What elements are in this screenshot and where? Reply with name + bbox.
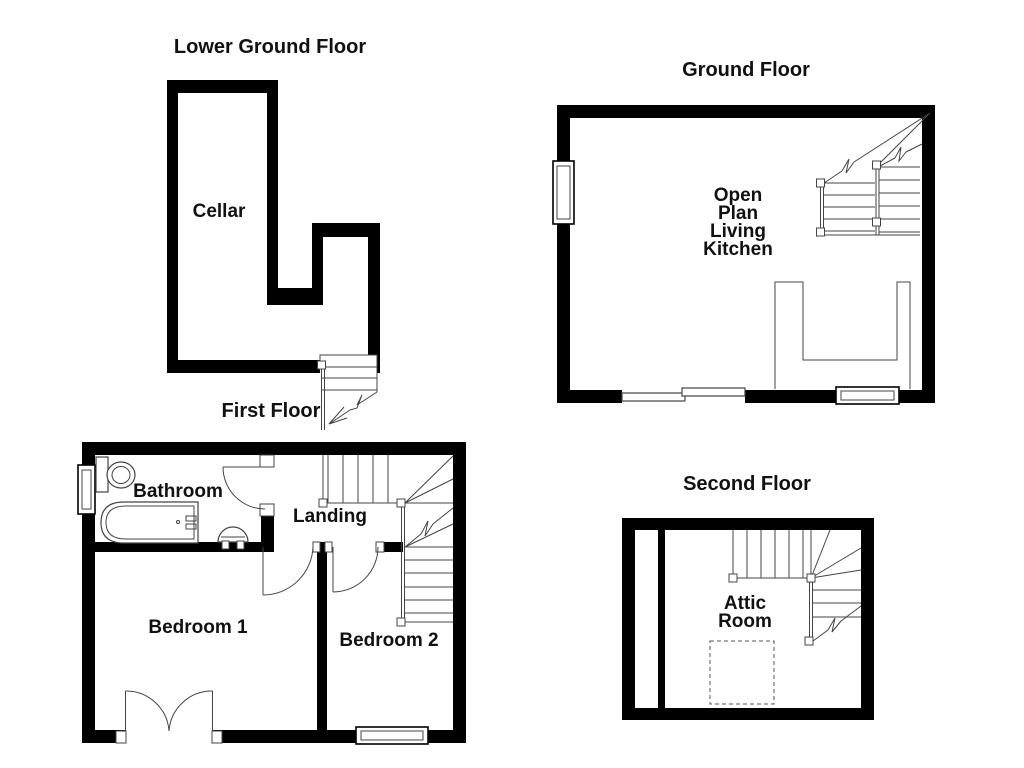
stair-upper-flight [323, 455, 453, 503]
lower-ground-floor-title: Lower Ground Floor [174, 36, 366, 58]
door-jamb [325, 542, 332, 552]
cellar-stairs [318, 355, 378, 430]
bathroom-window [78, 465, 95, 514]
stair-newel-post [397, 499, 405, 507]
ground-floor-plan: Ground Floor [553, 59, 935, 404]
stair-newel-post [805, 637, 813, 645]
kitchen-counter [775, 282, 910, 389]
lower-ground-floor-plan: Lower Ground Floor Cellar [167, 36, 380, 430]
open-plan-living-kitchen-label: Open Plan Living Kitchen [703, 185, 773, 260]
first-floor-plan: First Floor [78, 400, 466, 744]
ground-floor-bottom-window [836, 387, 899, 404]
stair-stringer [810, 578, 813, 642]
door-jamb [313, 542, 320, 552]
landing-label: Landing [293, 506, 367, 527]
toilet [96, 457, 135, 492]
floorplan-page: Lower Ground Floor Cellar Ground Floor [0, 0, 1024, 768]
second-floor-plan: Second Floor Attic Room [622, 473, 874, 720]
ground-floor-patio-door [622, 388, 745, 404]
floorplan-canvas: Lower Ground Floor Cellar Ground Floor [0, 0, 1024, 768]
stair-right-flight [876, 164, 920, 235]
first-floor-title: First Floor [222, 400, 321, 422]
bedroom1-label: Bedroom 1 [148, 617, 248, 638]
door-jamb [260, 455, 274, 467]
stair-winder-lines [405, 456, 453, 547]
ground-floor-stairs [817, 113, 931, 236]
second-floor-title: Second Floor [683, 473, 811, 495]
stair-lower-flight [813, 590, 862, 617]
ground-floor-title: Ground Floor [682, 59, 810, 81]
svg-text:Room: Room [718, 611, 772, 632]
stair-newel-post [318, 361, 326, 369]
stair-left-flight [821, 183, 921, 235]
door-jamb [260, 504, 274, 516]
stair-stringer [402, 503, 405, 622]
stair-well [320, 355, 377, 392]
stair-winder-lines [824, 113, 930, 183]
door-jamb [376, 542, 384, 552]
restricted-headroom-area [710, 641, 774, 704]
stair-break-arrow [329, 392, 377, 424]
stair-newel-post [817, 179, 825, 187]
stair-winder-lines [811, 530, 861, 578]
bedroom1-french-doors [116, 691, 222, 744]
cellar-label: Cellar [193, 201, 246, 222]
stair-break-line [813, 606, 861, 641]
stair-newel-post [873, 161, 881, 169]
ground-floor-left-window [553, 161, 574, 224]
bedroom2-window [356, 727, 428, 744]
bathroom-label: Bathroom [133, 481, 223, 502]
bedroom2-door [333, 547, 378, 592]
cellar-walls [167, 80, 380, 373]
bathtub [101, 502, 198, 543]
stair-lower-flight [405, 560, 453, 622]
stair-newel-post [729, 574, 737, 582]
stair-newel-post [817, 228, 825, 236]
bedroom2-label: Bedroom 2 [339, 630, 438, 651]
stair-newel-post [397, 618, 405, 626]
eaves-partition-wall [658, 530, 665, 708]
stair-newel-post [807, 574, 815, 582]
bathroom-door [223, 467, 265, 509]
stair-upper-flight [733, 530, 811, 578]
first-floor-stairs [319, 455, 453, 626]
svg-text:Kitchen: Kitchen [703, 239, 773, 260]
bedroom1-door [263, 547, 313, 595]
stair-newel-post [873, 218, 881, 226]
attic-room-label: Attic Room [718, 593, 772, 632]
